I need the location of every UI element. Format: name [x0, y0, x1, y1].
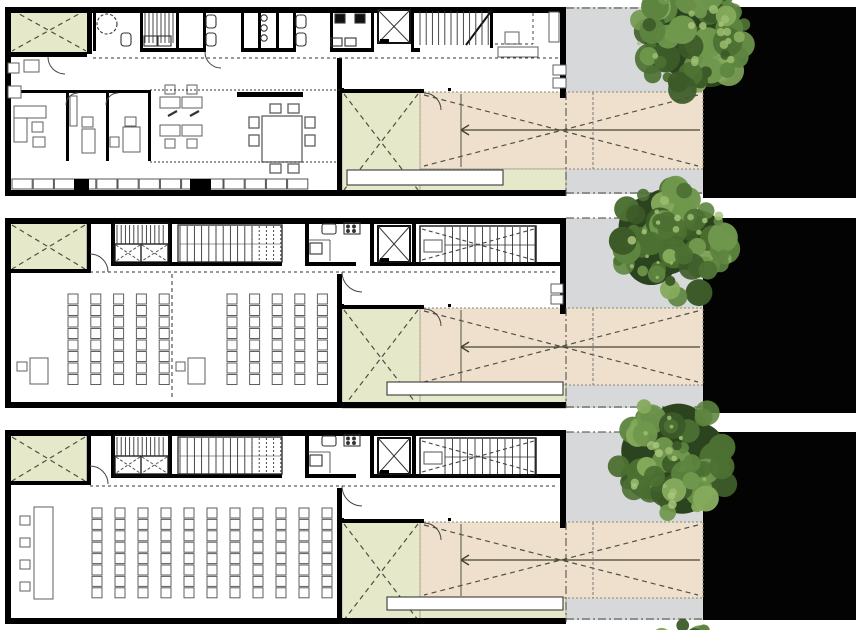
desk — [91, 329, 101, 339]
desk — [317, 329, 327, 339]
desk — [136, 317, 146, 327]
desk — [272, 352, 282, 362]
desk — [322, 508, 332, 518]
desk — [161, 542, 171, 552]
desk — [317, 352, 327, 362]
wall-pier — [190, 179, 211, 190]
desk — [253, 519, 263, 529]
desk — [227, 294, 237, 304]
desk — [184, 508, 194, 518]
desk — [253, 542, 263, 552]
desk — [92, 565, 102, 575]
desk — [272, 329, 282, 339]
desk — [159, 340, 169, 350]
desk — [272, 375, 282, 385]
desk — [295, 340, 305, 350]
desk — [115, 565, 125, 575]
desk — [159, 363, 169, 373]
desk — [227, 375, 237, 385]
desk — [230, 554, 240, 564]
desk — [250, 363, 260, 373]
desk — [207, 576, 217, 586]
window-pane — [245, 179, 265, 189]
window-pane — [33, 179, 53, 189]
desk — [276, 576, 286, 586]
desk — [68, 306, 78, 316]
desk — [272, 363, 282, 373]
desk — [276, 554, 286, 564]
terrace-bench — [347, 170, 503, 185]
desk — [299, 519, 309, 529]
desk — [114, 363, 124, 373]
window-pane — [139, 179, 159, 189]
desk — [295, 352, 305, 362]
desk — [317, 363, 327, 373]
desk — [250, 317, 260, 327]
desk — [68, 363, 78, 373]
desk — [68, 340, 78, 350]
desk — [227, 352, 237, 362]
desk — [136, 375, 146, 385]
desk — [161, 531, 171, 541]
desk — [272, 340, 282, 350]
desk — [253, 588, 263, 598]
desk — [161, 554, 171, 564]
desk — [159, 294, 169, 304]
desk — [253, 508, 263, 518]
desk — [230, 565, 240, 575]
desk — [114, 352, 124, 362]
desk — [299, 565, 309, 575]
desk — [68, 375, 78, 385]
desk — [250, 375, 260, 385]
desk — [207, 554, 217, 564]
desk — [207, 565, 217, 575]
desk — [159, 306, 169, 316]
desk — [91, 317, 101, 327]
desk — [322, 531, 332, 541]
desk — [184, 565, 194, 575]
desk — [92, 519, 102, 529]
desk — [161, 519, 171, 529]
desk — [276, 531, 286, 541]
desk — [92, 588, 102, 598]
desk — [207, 508, 217, 518]
window-pane — [97, 179, 117, 189]
desk — [138, 588, 148, 598]
desk — [184, 554, 194, 564]
desk — [299, 531, 309, 541]
plan-drawing — [0, 0, 856, 630]
desk — [207, 542, 217, 552]
desk — [91, 375, 101, 385]
desk — [272, 294, 282, 304]
desk — [253, 565, 263, 575]
desk — [91, 306, 101, 316]
desk — [92, 508, 102, 518]
desk — [317, 375, 327, 385]
desk — [161, 565, 171, 575]
desk — [114, 294, 124, 304]
desk — [115, 542, 125, 552]
window-pane — [288, 179, 308, 189]
desk — [253, 554, 263, 564]
desk — [299, 508, 309, 518]
desk — [253, 576, 263, 586]
desk — [114, 306, 124, 316]
desk — [114, 340, 124, 350]
desk — [92, 531, 102, 541]
desk — [250, 294, 260, 304]
desk — [322, 576, 332, 586]
service-unit — [335, 14, 345, 23]
plan1-elevator — [378, 10, 410, 43]
desk — [159, 375, 169, 385]
desk — [299, 576, 309, 586]
desk — [115, 588, 125, 598]
desk — [159, 317, 169, 327]
desk — [253, 531, 263, 541]
desk — [230, 519, 240, 529]
desk — [230, 531, 240, 541]
desk — [184, 519, 194, 529]
desk — [227, 317, 237, 327]
desk — [136, 294, 146, 304]
desk — [299, 588, 309, 598]
desk — [276, 588, 286, 598]
plan3-elevator — [378, 438, 410, 474]
desk — [138, 542, 148, 552]
desk — [207, 531, 217, 541]
desk — [322, 588, 332, 598]
desk — [295, 294, 305, 304]
desk — [159, 352, 169, 362]
desk — [184, 542, 194, 552]
desk — [68, 317, 78, 327]
window-pane — [54, 179, 74, 189]
window-pane — [266, 179, 286, 189]
desk — [250, 352, 260, 362]
desk — [159, 329, 169, 339]
desk — [115, 508, 125, 518]
desk — [136, 363, 146, 373]
desk — [115, 519, 125, 529]
window-pane — [12, 179, 32, 189]
desk — [91, 294, 101, 304]
desk — [114, 317, 124, 327]
desk — [322, 554, 332, 564]
desk — [276, 508, 286, 518]
desk — [250, 306, 260, 316]
desk — [136, 352, 146, 362]
desk — [272, 317, 282, 327]
desk — [276, 519, 286, 529]
desk — [317, 306, 327, 316]
desk — [115, 554, 125, 564]
window-pane — [118, 179, 138, 189]
desk — [276, 542, 286, 552]
desk — [136, 329, 146, 339]
desk — [114, 329, 124, 339]
desk — [299, 542, 309, 552]
desk — [322, 542, 332, 552]
desk — [68, 352, 78, 362]
desk — [161, 588, 171, 598]
desk — [295, 363, 305, 373]
desk — [295, 317, 305, 327]
desk — [295, 329, 305, 339]
terrace-bench — [387, 382, 563, 395]
desk — [295, 306, 305, 316]
desk — [299, 554, 309, 564]
desk — [161, 508, 171, 518]
desk — [115, 531, 125, 541]
service-unit — [355, 14, 365, 23]
desk — [138, 508, 148, 518]
window-pane — [160, 179, 180, 189]
desk — [227, 329, 237, 339]
desk — [207, 519, 217, 529]
desk — [161, 576, 171, 586]
desk — [227, 363, 237, 373]
desk — [91, 352, 101, 362]
desk — [136, 340, 146, 350]
desk — [250, 329, 260, 339]
desk — [230, 576, 240, 586]
desk — [322, 565, 332, 575]
desk — [92, 554, 102, 564]
desk — [322, 519, 332, 529]
desk — [272, 306, 282, 316]
window-mullion-strip — [12, 179, 308, 190]
desk — [138, 531, 148, 541]
desk — [115, 576, 125, 586]
desk — [114, 375, 124, 385]
desk — [317, 317, 327, 327]
desk — [295, 375, 305, 385]
wall-pier — [74, 179, 89, 190]
desk — [227, 340, 237, 350]
desk — [207, 588, 217, 598]
desk — [138, 554, 148, 564]
desk — [227, 306, 237, 316]
desk — [230, 508, 240, 518]
desk — [92, 542, 102, 552]
desk — [138, 565, 148, 575]
desk — [68, 294, 78, 304]
desk — [136, 306, 146, 316]
desk — [91, 363, 101, 373]
desk — [92, 576, 102, 586]
desk — [317, 294, 327, 304]
desk — [68, 329, 78, 339]
desk — [317, 340, 327, 350]
desk — [230, 588, 240, 598]
terrace-bench — [387, 597, 563, 610]
window-pane — [224, 179, 244, 189]
desk — [184, 531, 194, 541]
desk — [91, 340, 101, 350]
desk — [138, 576, 148, 586]
desk — [276, 565, 286, 575]
desk — [138, 519, 148, 529]
desk — [230, 542, 240, 552]
desk — [184, 588, 194, 598]
plan2-elevator — [378, 226, 410, 262]
desk — [184, 576, 194, 586]
floor-plan-sheet — [0, 0, 856, 630]
desk — [250, 340, 260, 350]
